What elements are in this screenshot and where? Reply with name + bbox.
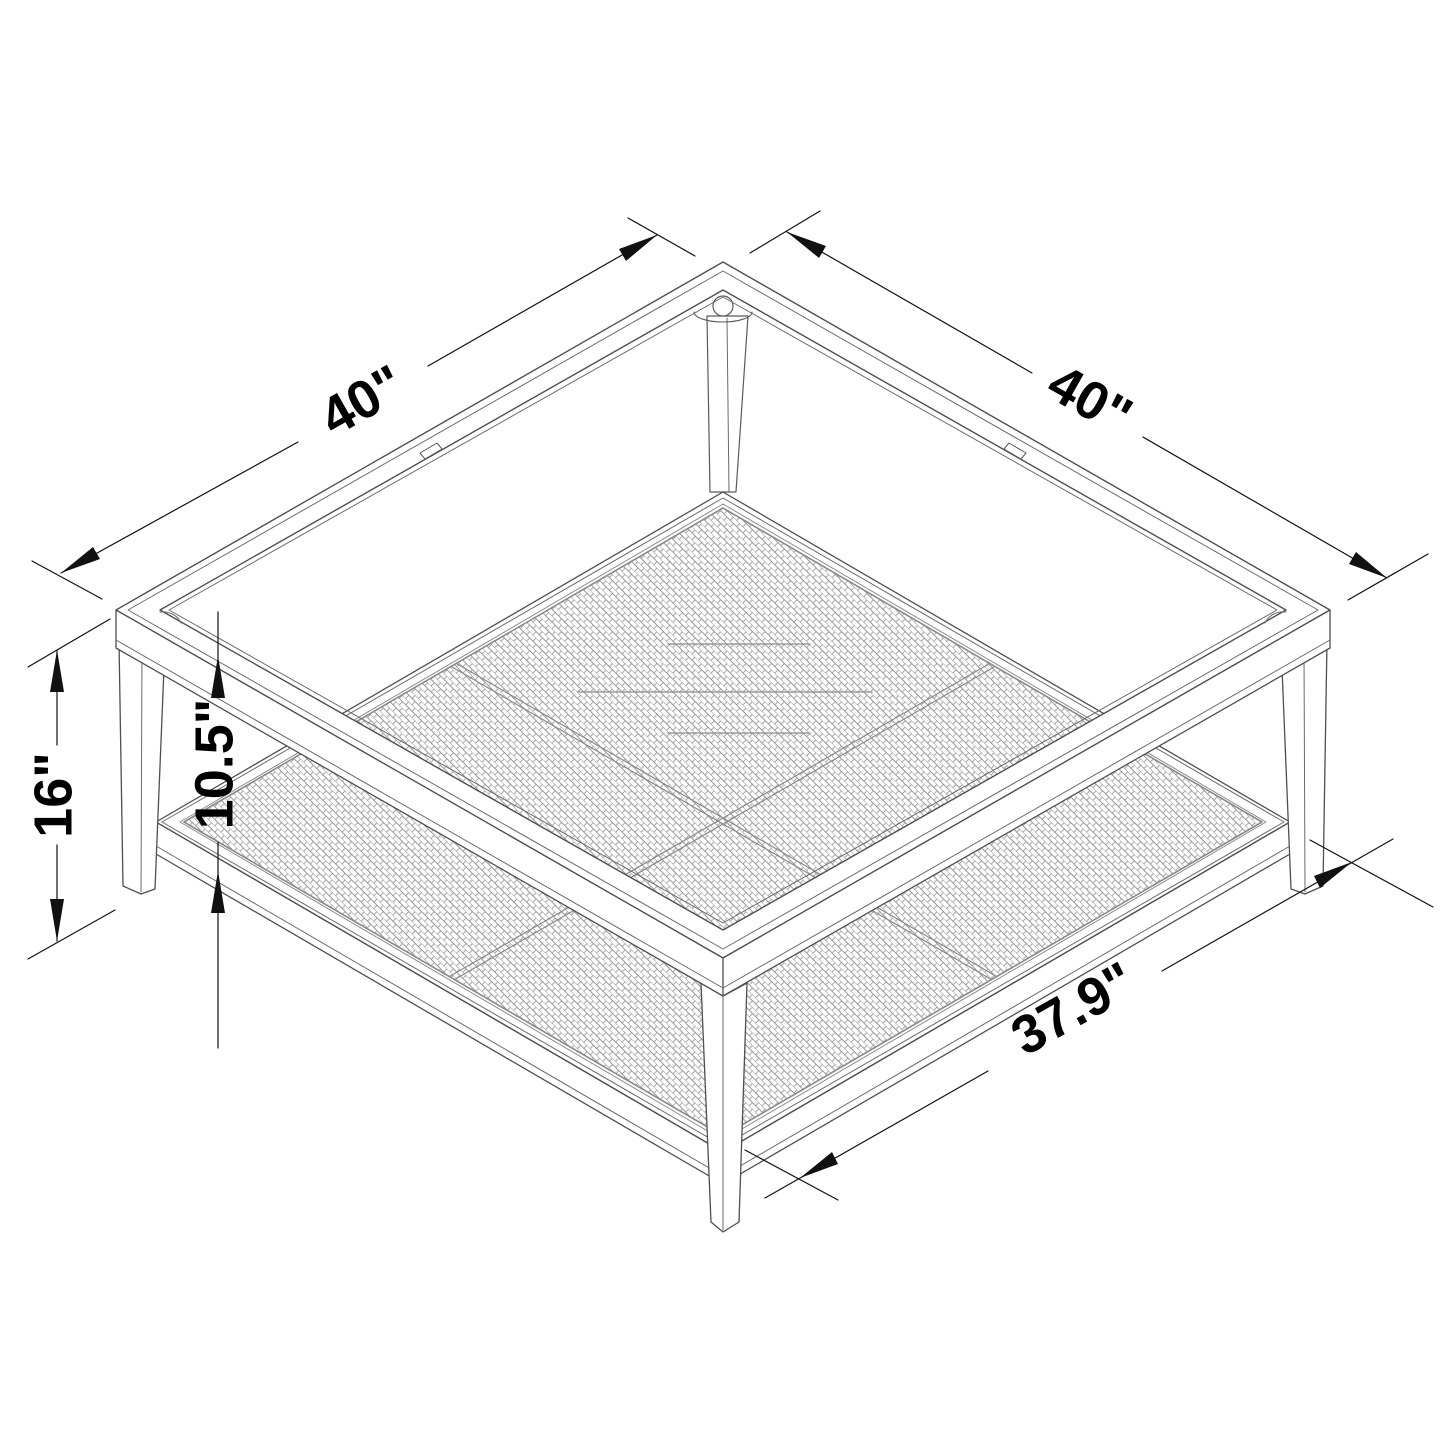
corner-cap-icon bbox=[713, 296, 733, 316]
dim-height-label: 16" bbox=[23, 752, 83, 838]
coffee-table-dimension-drawing: 40" 40" 16" 10.5" 37.9" bbox=[0, 0, 1445, 1445]
diagram-canvas: 40" 40" 16" 10.5" 37.9" bbox=[0, 0, 1445, 1445]
dim-clearance-label: 10.5" bbox=[184, 699, 244, 830]
